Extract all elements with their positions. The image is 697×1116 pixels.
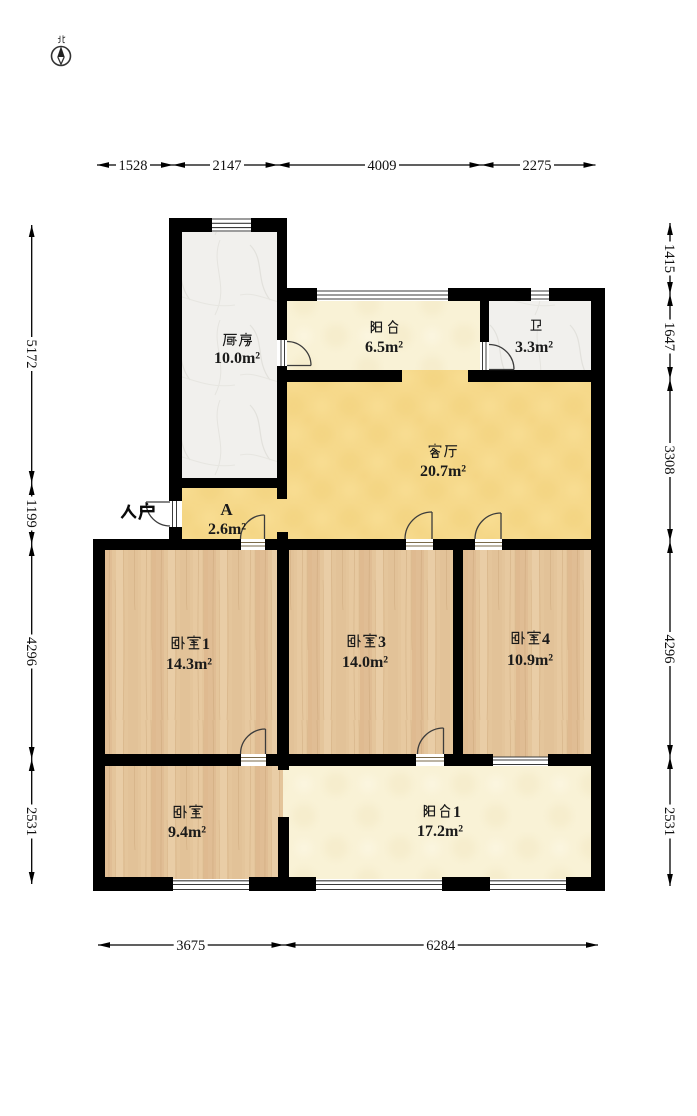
svg-text:4009: 4009 (368, 158, 397, 174)
svg-text:1647: 1647 (661, 322, 677, 351)
svg-text:2275: 2275 (523, 158, 552, 174)
svg-text:5172: 5172 (23, 340, 39, 369)
svg-text:9.4m²: 9.4m² (168, 824, 206, 841)
svg-text:3: 3 (378, 634, 386, 651)
svg-text:1415: 1415 (661, 244, 677, 273)
svg-text:10.9m²: 10.9m² (507, 652, 553, 669)
svg-text:4296: 4296 (661, 635, 677, 664)
svg-text:A: A (220, 500, 233, 519)
svg-text:1: 1 (202, 636, 210, 653)
svg-text:14.3m²: 14.3m² (166, 656, 212, 673)
svg-text:1199: 1199 (23, 499, 39, 527)
svg-text:2531: 2531 (23, 807, 39, 836)
svg-text:10.0m²: 10.0m² (214, 350, 260, 367)
svg-text:3308: 3308 (661, 446, 677, 475)
svg-text:4296: 4296 (23, 637, 39, 666)
svg-text:1: 1 (453, 804, 461, 821)
svg-text:2.6m²: 2.6m² (208, 521, 246, 538)
svg-text:3675: 3675 (176, 938, 205, 954)
svg-text:2531: 2531 (661, 807, 677, 836)
svg-text:17.2m²: 17.2m² (417, 823, 463, 840)
svg-text:6.5m²: 6.5m² (365, 339, 403, 356)
svg-text:4: 4 (542, 631, 550, 648)
svg-text:20.7m²: 20.7m² (420, 463, 466, 480)
svg-text:6284: 6284 (426, 938, 456, 954)
svg-text:14.0m²: 14.0m² (342, 654, 388, 671)
svg-text:3.3m²: 3.3m² (515, 339, 553, 356)
svg-text:1528: 1528 (119, 158, 148, 174)
svg-text:2147: 2147 (213, 158, 242, 174)
